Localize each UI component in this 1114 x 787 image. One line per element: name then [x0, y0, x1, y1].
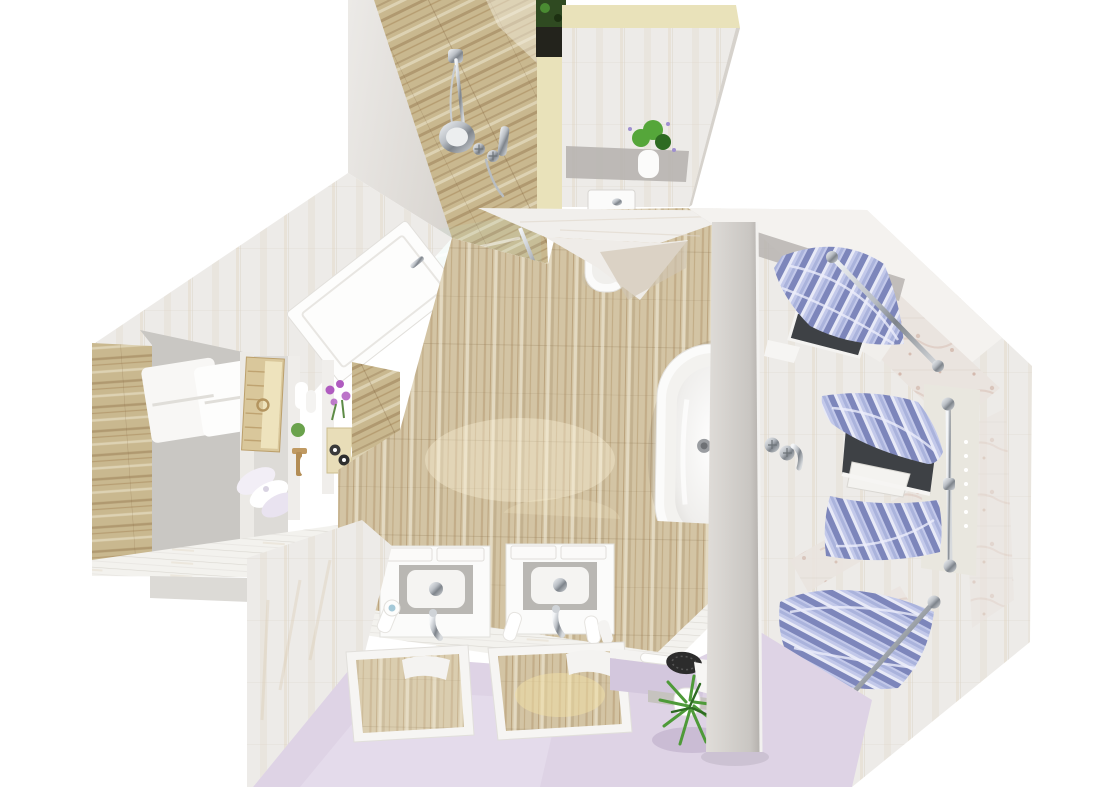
basin-drain	[553, 578, 567, 592]
cream-top-band	[562, 5, 740, 28]
shelf-divider	[322, 360, 334, 494]
cabinet-door	[561, 546, 606, 559]
bathroom-render	[0, 0, 1114, 787]
towel-roll-core	[263, 486, 269, 492]
shelf-divider	[288, 356, 300, 520]
dark-tile	[536, 27, 566, 57]
curtain-swag	[825, 496, 942, 560]
lavender-sprig	[666, 122, 670, 126]
rod-bracket	[943, 478, 955, 490]
vanity-right	[502, 544, 614, 645]
wc-plant-leaves	[655, 134, 671, 150]
shelf-greenery	[291, 423, 305, 437]
basin-drain	[429, 582, 443, 596]
counter-front	[150, 576, 250, 602]
foliage-shade	[554, 14, 562, 22]
shower-head-face	[446, 128, 468, 147]
mirror-left	[346, 645, 474, 742]
rod-finial-icon	[944, 560, 957, 573]
wc-gray-shelf	[566, 146, 689, 182]
small-vase	[300, 455, 313, 476]
rod-finial-icon	[932, 360, 944, 372]
wc-plant-pot	[638, 150, 659, 178]
lavender-sprig	[672, 148, 676, 152]
foliage-leaf	[540, 3, 550, 13]
cabinet-door	[385, 548, 432, 561]
vanity-left	[376, 546, 490, 638]
window-foliage	[536, 0, 566, 27]
flush-button	[612, 198, 622, 205]
partition-slab	[706, 222, 761, 752]
rod-finial-icon	[826, 251, 838, 263]
rod-finial-icon	[942, 398, 955, 411]
wc-compartment	[562, 28, 740, 215]
cabinet-door	[437, 548, 484, 561]
rod-finial-icon	[928, 596, 941, 609]
wicker-basket	[242, 357, 285, 452]
floorplan-svg	[0, 0, 1114, 787]
floor-light-spot	[425, 418, 615, 502]
cabinet-door	[511, 546, 556, 559]
mirror-glow	[515, 673, 605, 717]
cream-pillar	[537, 57, 562, 213]
lavender-sprig	[628, 127, 632, 131]
